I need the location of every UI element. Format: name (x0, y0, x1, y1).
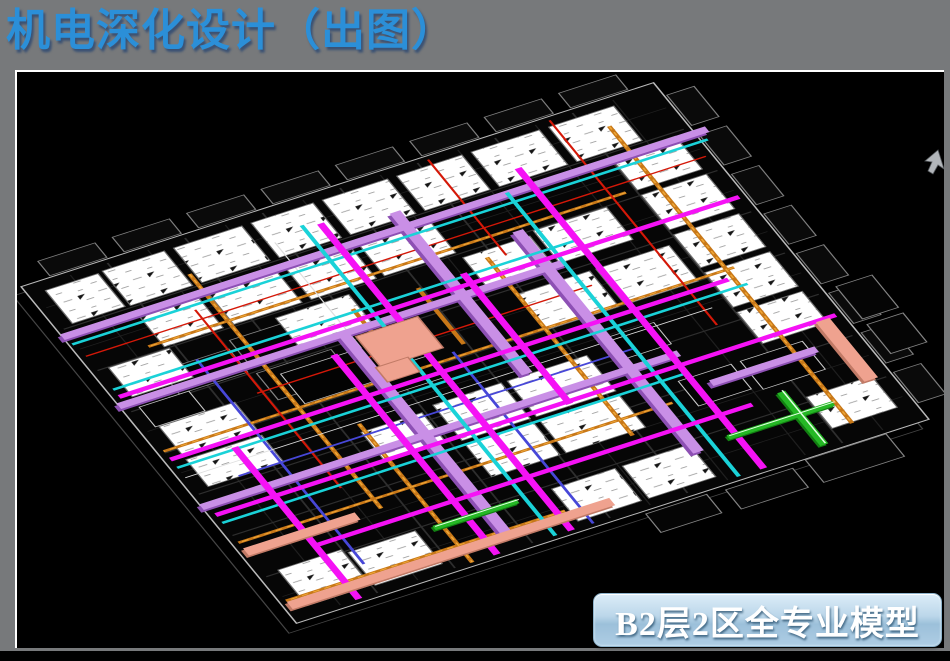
slide-root: { "slide": { "title": "机电深化设计（出图）", "mod… (0, 0, 950, 661)
model-scene (17, 72, 944, 648)
bottom-black-strip (0, 651, 950, 661)
model-caption-label: B2层2区全专业模型 (615, 596, 920, 645)
page-title: 机电深化设计（出图） (0, 0, 950, 60)
pointer-cursor-icon (925, 150, 944, 174)
model-viewport: B2层2区全专业模型 (15, 70, 944, 648)
title-bar: 机电深化设计（出图） (0, 0, 950, 70)
model-caption-button: B2层2区全专业模型 (593, 593, 942, 647)
slide-background: 机电深化设计（出图） (0, 0, 950, 651)
bim-model-3d-view (17, 72, 944, 648)
